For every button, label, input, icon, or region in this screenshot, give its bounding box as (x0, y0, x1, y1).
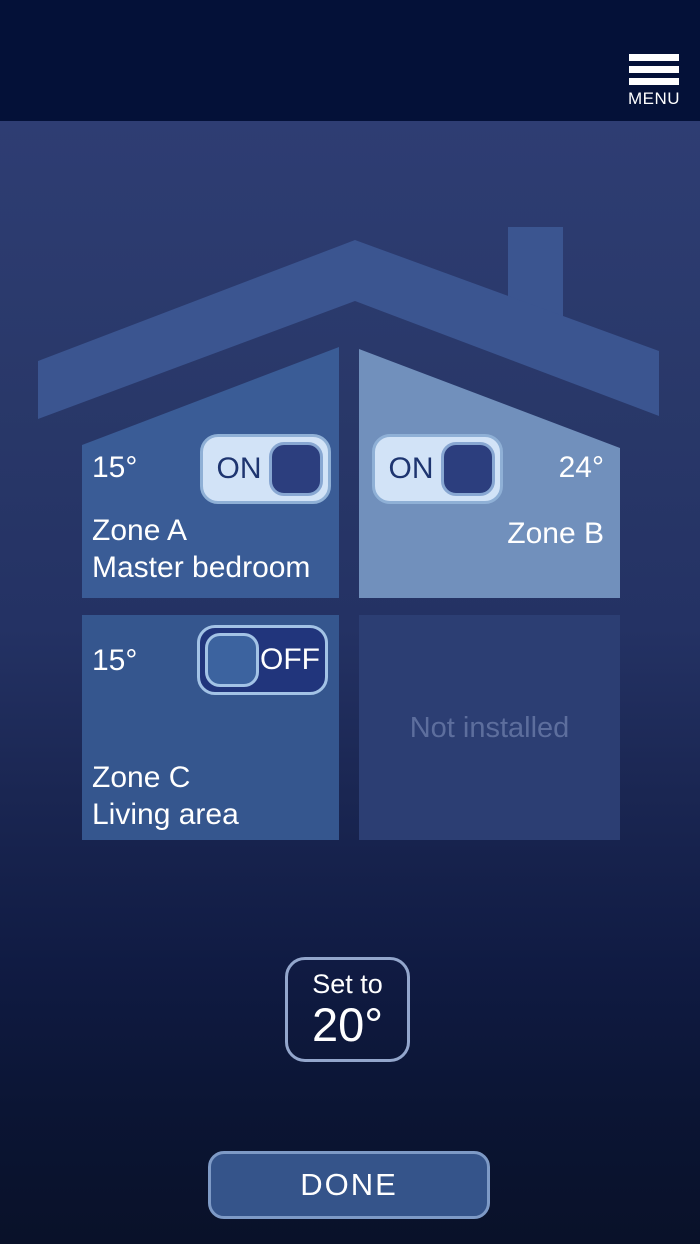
menu-label: MENU (628, 89, 680, 109)
done-button[interactable]: DONE (208, 1151, 490, 1219)
zone-not-installed-label: Not installed (359, 713, 620, 745)
menu-button[interactable]: MENU (628, 54, 680, 109)
zone-c-toggle-knob (205, 633, 259, 687)
zone-c-temperature: 15° (92, 644, 137, 677)
thermostat-app-screen: MENU 15° ON Zone A Master bedroom ON 24°… (0, 0, 700, 1244)
house-view: 15° ON Zone A Master bedroom ON 24° Zone… (0, 121, 700, 1244)
zone-a-toggle-state: ON (203, 452, 275, 486)
zone-a-temperature: 15° (92, 451, 137, 484)
zone-c-toggle-state: OFF (255, 643, 325, 677)
zone-c-room: Living area (92, 798, 239, 831)
setpoint-button[interactable]: Set to 20° (285, 957, 410, 1062)
setpoint-value: 20° (312, 1000, 383, 1049)
zone-b-name: Zone B (507, 517, 604, 550)
hamburger-menu-icon (629, 54, 679, 89)
top-bar: MENU (0, 0, 700, 121)
zone-b-toggle-knob (441, 442, 495, 496)
zone-b-toggle[interactable]: ON (372, 434, 503, 504)
zone-b-temperature: 24° (559, 451, 604, 484)
roof-graphic (38, 240, 659, 419)
zone-a-name: Zone A (92, 514, 187, 547)
zone-a-toggle[interactable]: ON (200, 434, 331, 504)
zone-b-toggle-state: ON (375, 452, 447, 486)
zone-a-toggle-knob (269, 442, 323, 496)
zone-c-toggle[interactable]: OFF (197, 625, 328, 695)
zone-c-name: Zone C (92, 761, 190, 794)
zone-a-room: Master bedroom (92, 551, 310, 584)
setpoint-label: Set to (312, 969, 383, 1000)
